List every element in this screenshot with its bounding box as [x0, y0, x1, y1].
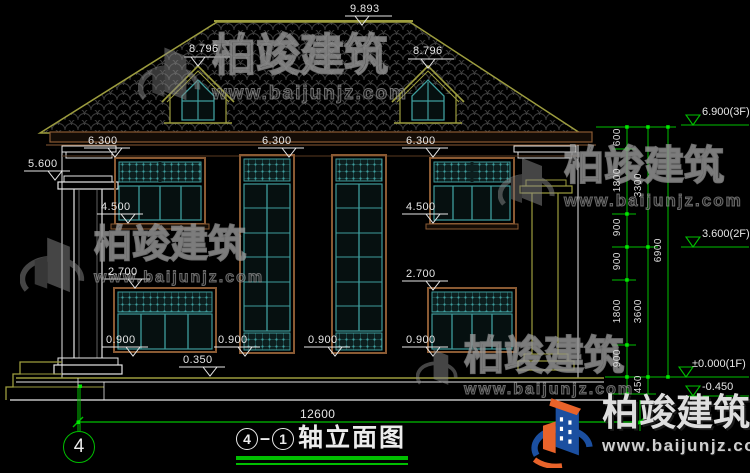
chain-total-6900: 6900 — [653, 238, 664, 262]
dim-sill1f-3: 0.900 — [308, 334, 338, 346]
dim-sill1f-2: 0.900 — [218, 334, 248, 346]
window-tall-right — [332, 155, 386, 353]
dim-lintel1f-left: 2.700 — [108, 266, 138, 278]
dim-chain-right — [596, 125, 676, 396]
title-dash: – — [260, 428, 270, 449]
window-1f-right — [428, 288, 516, 352]
dim-dormer-right: 8.796 — [413, 45, 443, 57]
dim-sill1f-1: 0.900 — [106, 334, 136, 346]
elevation-linework — [0, 0, 750, 473]
chain-sub-3600: 3600 — [633, 299, 644, 323]
dim-sill2f-left: 4.500 — [101, 201, 131, 213]
window-2f-right — [426, 158, 518, 229]
cad-elevation-drawing: 9.893 8.796 8.796 6.300 6.300 6.300 5.60… — [0, 0, 750, 473]
chain-seg-1800b: 1800 — [612, 299, 623, 323]
dim-sill2f-right: 4.500 — [406, 201, 436, 213]
level-markers-right — [674, 115, 749, 396]
dim-sill1f-4: 0.900 — [406, 334, 436, 346]
chain-seg-900b: 900 — [612, 252, 623, 270]
title-axis-circle-b: 1 — [272, 428, 294, 450]
dim-dormer-left: 8.796 — [189, 43, 219, 55]
level-base: -0.450 — [702, 381, 733, 393]
dim-porch-floor: 0.350 — [183, 354, 213, 366]
chain-seg-900a: 900 — [612, 218, 623, 236]
window-tall-left — [240, 155, 294, 353]
title-axis-circle-a: 4 — [236, 428, 258, 450]
porch-steps — [6, 362, 104, 400]
level-3f: 6.900(3F) — [702, 106, 750, 118]
level-2f: 3.600(2F) — [702, 228, 750, 240]
chain-seg-1800a: 1800 — [612, 168, 623, 192]
dim-lintel1f-right: 2.700 — [406, 268, 436, 280]
title-underline-thick — [236, 456, 408, 460]
chain-sub-3300: 3300 — [633, 173, 644, 197]
chain-sub-450: 450 — [633, 375, 644, 393]
roof — [40, 21, 580, 133]
ground-lines — [10, 378, 610, 404]
dim-total-width: 12600 — [300, 407, 335, 421]
chain-seg-600: 600 — [612, 128, 623, 146]
window-2f-left — [111, 158, 209, 229]
dim-eave-3: 6.300 — [406, 135, 436, 147]
axis-bubble-4: 4 — [63, 431, 95, 463]
dim-ridge: 9.893 — [350, 3, 380, 15]
eave-band — [46, 132, 596, 158]
porch-column-right — [518, 180, 574, 370]
dim-porch-cap: 5.600 — [28, 158, 58, 170]
title-underline-thin — [236, 463, 408, 465]
dim-eave-1: 6.300 — [88, 135, 118, 147]
dim-eave-2: 6.300 — [262, 135, 292, 147]
chain-seg-900c: 900 — [612, 349, 623, 367]
level-1f: ±0.000(1F) — [692, 358, 746, 370]
drawing-title: 4 – 1 轴立面图 — [236, 426, 406, 451]
title-text: 轴立面图 — [298, 426, 406, 451]
